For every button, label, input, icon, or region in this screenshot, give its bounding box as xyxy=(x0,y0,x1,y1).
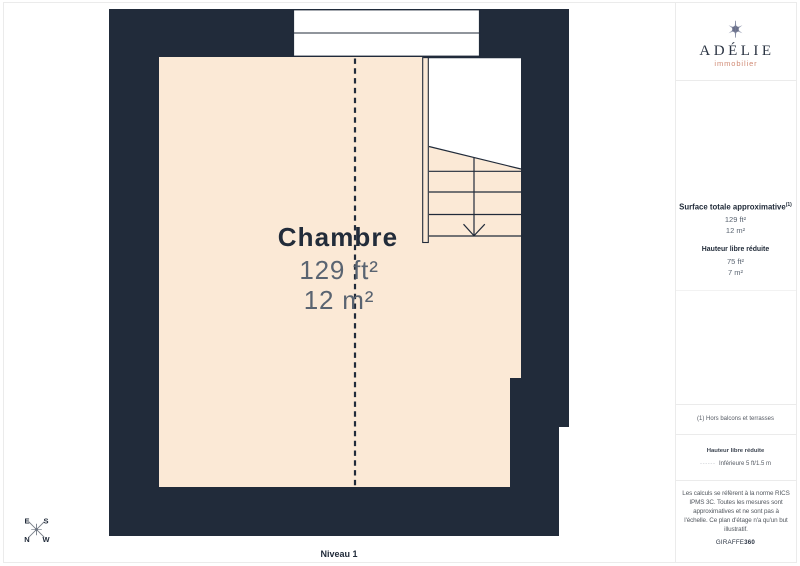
svg-text:E: E xyxy=(24,517,29,526)
svg-text:S: S xyxy=(43,517,48,526)
svg-text:N: N xyxy=(24,535,29,544)
svg-text:W: W xyxy=(42,535,50,544)
